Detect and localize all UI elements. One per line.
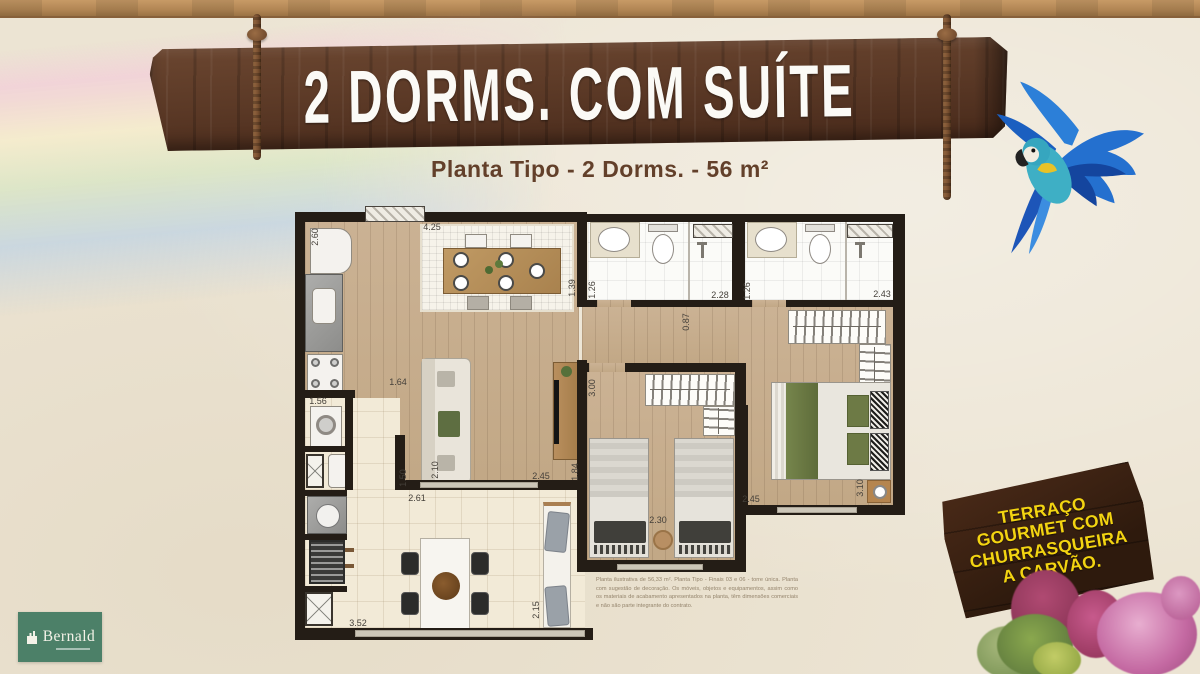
dimension-label: 1.64 [389, 377, 407, 387]
dimension-label: 1.39 [567, 279, 577, 297]
building-icon [25, 629, 39, 645]
dimension-label: 3.00 [587, 379, 597, 397]
wood-beam [0, 0, 1200, 18]
flower-bushes [975, 556, 1200, 674]
plan-disclaimer: Planta ilustrativa de 56,33 m². Planta T… [596, 576, 798, 611]
logo-tagline [56, 648, 90, 651]
yellow-green-bush [1033, 642, 1081, 674]
dimension-label: 1.26 [742, 282, 752, 300]
dimension-label: 2.43 [873, 289, 891, 299]
dimension-label: 2.61 [408, 493, 426, 503]
dimension-label: 1.50 [398, 469, 408, 487]
subtitle: Planta Tipo - 2 Dorms. - 56 m² [300, 156, 900, 183]
hanging-sign: 2 DORMS. COM SUÍTE [149, 37, 1008, 151]
logo-name: Bernald [43, 628, 96, 646]
dimension-label: 3.10 [855, 479, 865, 497]
dimension-label: 3.52 [349, 618, 367, 628]
macaw-parrot-image [981, 76, 1148, 262]
dimension-label: 2.15 [531, 601, 541, 619]
rope-right [943, 14, 951, 200]
dimension-label: 2.60 [310, 228, 320, 246]
dimension-label: 1.56 [309, 396, 327, 406]
pink-flower-bush [1161, 576, 1200, 620]
dimension-label: 2.10 [430, 461, 440, 479]
dimension-label: 1.26 [587, 281, 597, 299]
main-title: 2 DORMS. COM SUÍTE [303, 48, 856, 140]
dimension-label: 2.30 [649, 515, 667, 525]
dimension-label: 2.45 [742, 494, 760, 504]
dimension-label: 4.25 [423, 222, 441, 232]
dimension-label: 0.87 [681, 313, 691, 331]
dimension-label: 1.84 [570, 463, 580, 481]
bernald-logo: Bernald [18, 612, 102, 662]
dimension-label: 2.28 [711, 290, 729, 300]
dimension-label: 2.45 [532, 471, 550, 481]
rope-knot-icon [937, 28, 957, 41]
rope-left [253, 14, 261, 160]
rope-knot-icon [247, 28, 267, 41]
poster: 2 DORMS. COM SUÍTE Planta Tipo - 2 Dorms… [0, 0, 1200, 674]
